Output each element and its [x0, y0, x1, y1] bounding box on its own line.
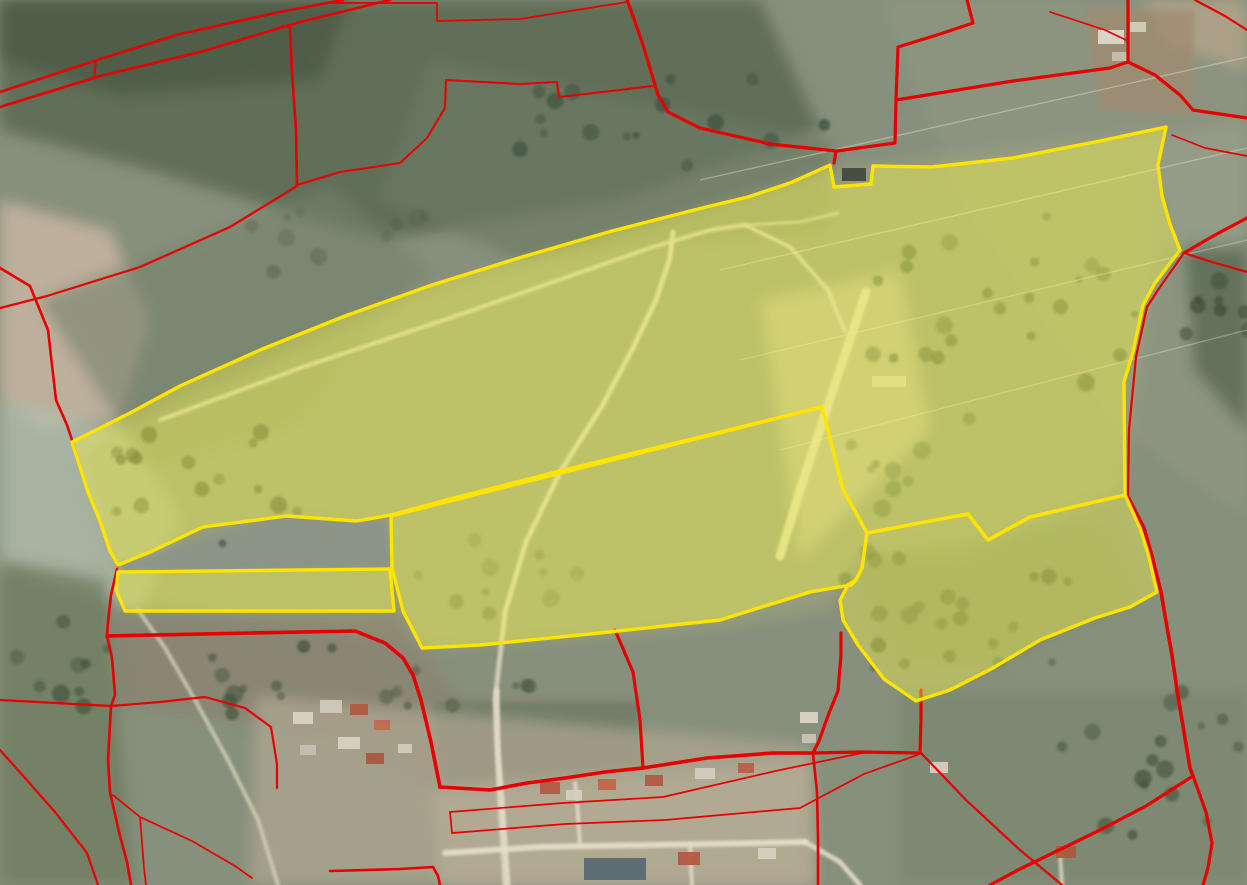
- tree-blob: [818, 119, 830, 131]
- tree-blob: [277, 692, 285, 700]
- tree-blob: [1211, 272, 1228, 289]
- tree-blob: [564, 84, 580, 100]
- tree-blob: [267, 265, 281, 279]
- building: [350, 704, 368, 715]
- tree-blob: [512, 141, 528, 157]
- building: [758, 848, 776, 859]
- building: [645, 775, 663, 786]
- tree-blob: [665, 74, 675, 84]
- tree-blob: [512, 682, 520, 690]
- tree-blob: [1190, 298, 1206, 314]
- building: [584, 858, 646, 880]
- tree-blob: [208, 653, 217, 662]
- building: [1112, 52, 1127, 61]
- building: [1130, 22, 1146, 32]
- tree-blob: [52, 685, 70, 703]
- tree-blob: [540, 129, 548, 137]
- tree-blob: [10, 650, 24, 664]
- tree-blob: [1057, 741, 1068, 752]
- tree-blob: [271, 680, 282, 691]
- building: [293, 712, 313, 724]
- building: [695, 768, 715, 779]
- building: [540, 782, 560, 794]
- tree-blob: [56, 615, 70, 629]
- tree-blob: [1214, 304, 1227, 317]
- selected-parcel-strip[interactable]: [116, 569, 394, 611]
- tree-blob: [746, 73, 759, 86]
- tree-blob: [707, 114, 724, 131]
- building: [842, 168, 866, 181]
- tree-blob: [404, 702, 412, 710]
- building: [802, 734, 816, 743]
- tree-blob: [76, 698, 92, 714]
- tree-blob: [245, 219, 258, 232]
- building: [338, 737, 360, 749]
- tree-blob: [1233, 741, 1244, 752]
- tree-blob: [533, 86, 546, 99]
- tree-blob: [1217, 714, 1228, 725]
- tree-blob: [70, 657, 86, 673]
- building: [598, 779, 616, 790]
- building: [300, 745, 316, 755]
- tree-blob: [215, 668, 230, 683]
- tree-blob: [295, 208, 305, 218]
- tree-blob: [547, 92, 564, 109]
- tree-blob: [34, 680, 46, 692]
- building: [678, 852, 700, 865]
- tree-blob: [1134, 770, 1151, 787]
- tree-blob: [409, 209, 427, 227]
- tree-blob: [535, 114, 545, 124]
- building: [566, 790, 582, 800]
- tree-blob: [225, 707, 238, 720]
- building: [800, 712, 818, 723]
- tree-blob: [1048, 659, 1056, 667]
- tree-blob: [1156, 760, 1174, 778]
- tree-blob: [327, 643, 336, 652]
- tree-blob: [632, 132, 639, 139]
- tree-blob: [1084, 724, 1101, 741]
- tree-blob: [1155, 735, 1167, 747]
- tree-blob: [391, 218, 403, 230]
- tree-blob: [1128, 830, 1138, 840]
- building: [366, 753, 384, 764]
- tree-blob: [219, 540, 227, 548]
- tree-blob: [1214, 296, 1223, 305]
- building: [398, 744, 412, 753]
- cadastral-map-canvas[interactable]: [0, 0, 1247, 885]
- tree-blob: [520, 679, 533, 692]
- tree-blob: [379, 690, 394, 705]
- map-viewport[interactable]: [0, 0, 1247, 885]
- building: [738, 763, 754, 773]
- tree-blob: [1146, 754, 1158, 766]
- tree-blob: [278, 229, 295, 246]
- tree-blob: [1180, 327, 1193, 340]
- tree-blob: [381, 230, 393, 242]
- tree-blob: [297, 640, 310, 653]
- tree-blob: [445, 698, 460, 713]
- building: [374, 720, 390, 730]
- tree-blob: [239, 685, 247, 693]
- tree-blob: [1198, 722, 1205, 729]
- tree-blob: [623, 133, 631, 141]
- tree-blob: [582, 124, 599, 141]
- tree-blob: [681, 160, 693, 172]
- tree-blob: [310, 248, 327, 265]
- building: [320, 700, 342, 713]
- tree-blob: [283, 213, 291, 221]
- tree-blob: [74, 687, 84, 697]
